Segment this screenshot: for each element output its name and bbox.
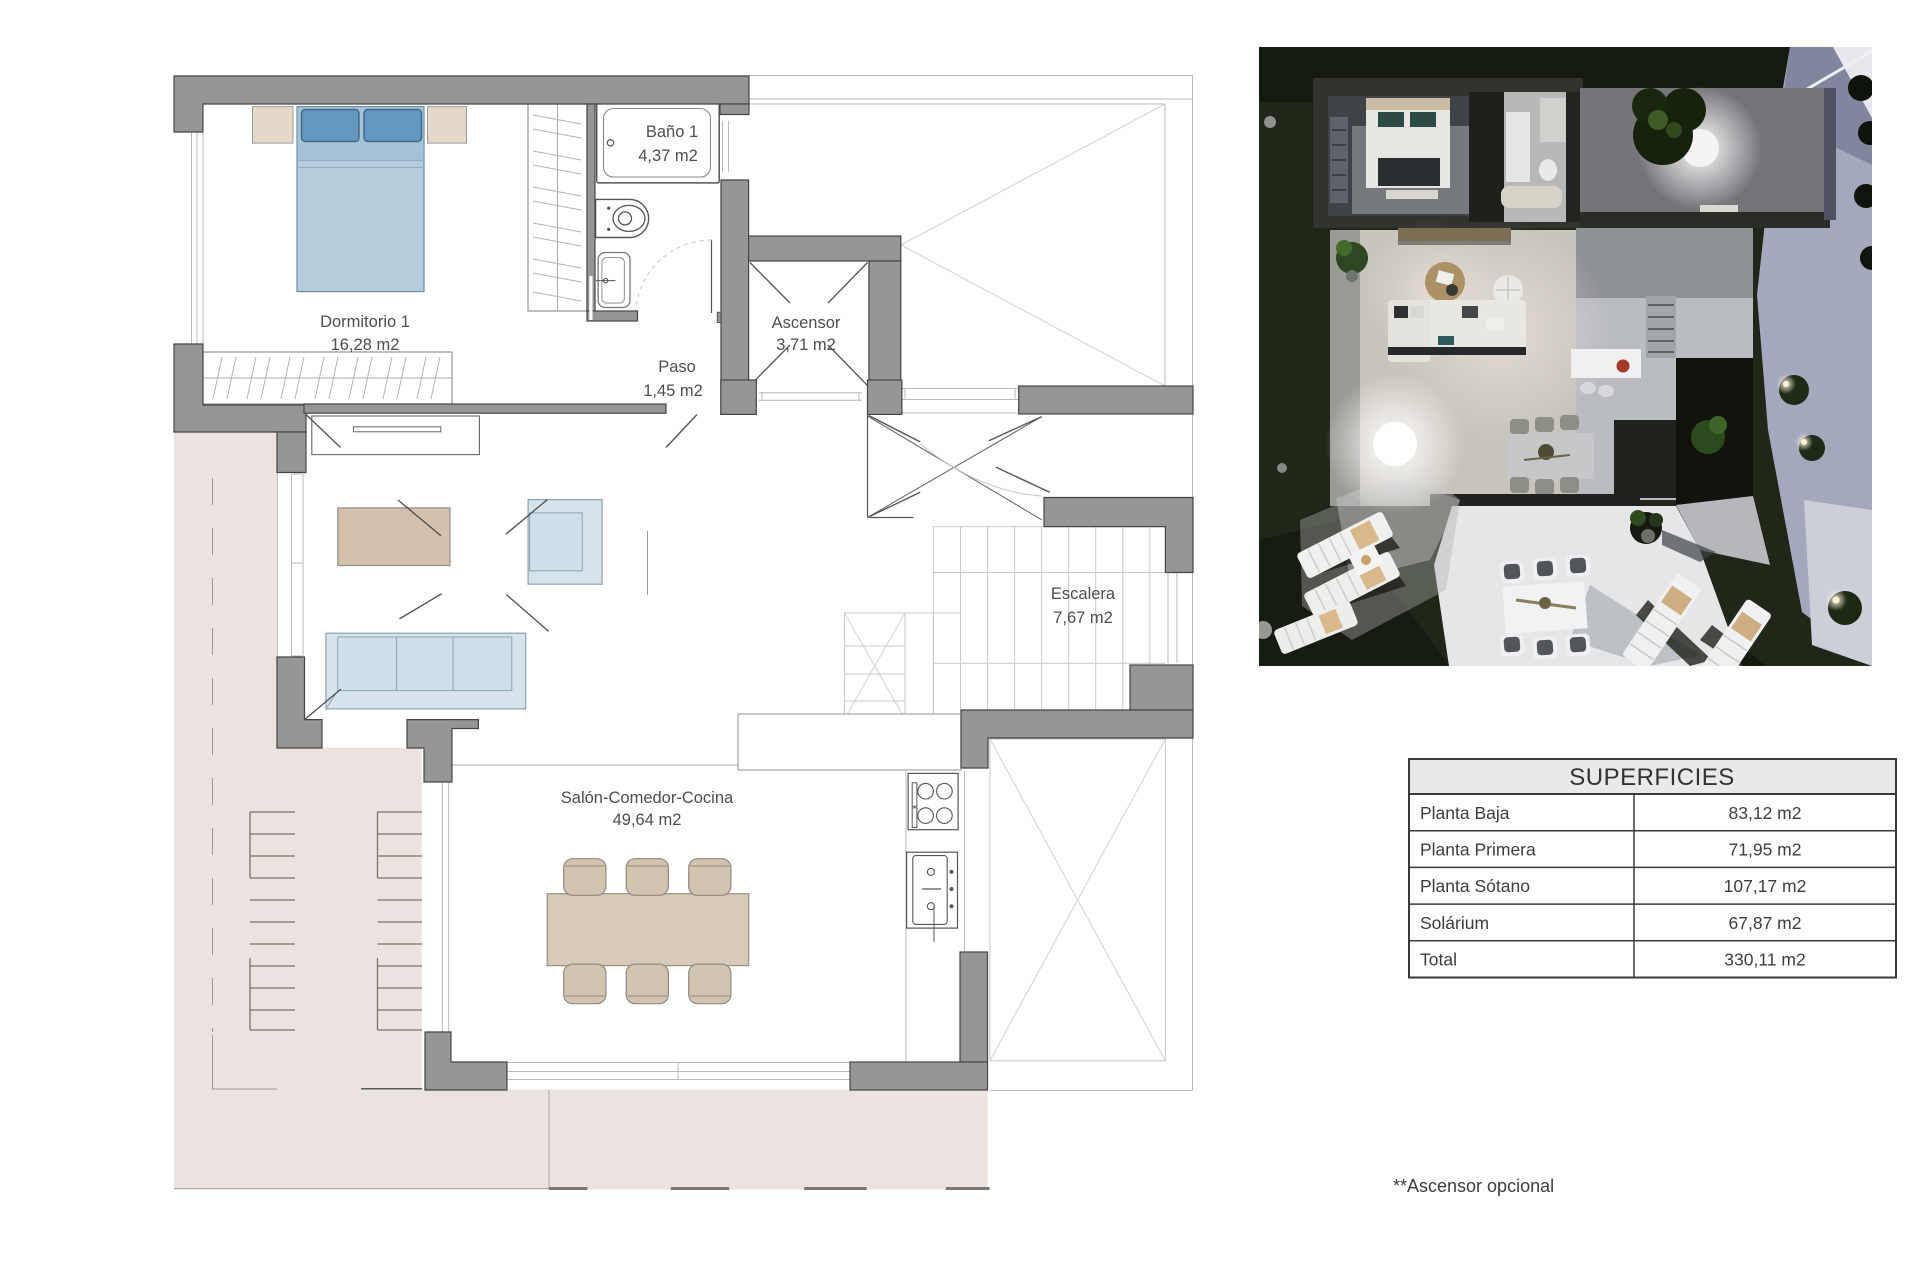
svg-text:Solárium: Solárium <box>1420 913 1489 933</box>
svg-text:Ascensor: Ascensor <box>772 314 841 332</box>
svg-text:Planta Sótano: Planta Sótano <box>1420 876 1530 896</box>
svg-text:71,95 m2: 71,95 m2 <box>1729 840 1802 860</box>
svg-text:3,71 m2: 3,71 m2 <box>776 336 836 354</box>
svg-text:Total: Total <box>1420 950 1457 970</box>
svg-text:Salón-Comedor-Cocina: Salón-Comedor-Cocina <box>561 789 734 807</box>
svg-text:Dormitorio 1: Dormitorio 1 <box>320 313 410 331</box>
svg-text:Baño 1: Baño 1 <box>646 123 698 141</box>
svg-text:4,37 m2: 4,37 m2 <box>638 147 698 165</box>
svg-text:49,64 m2: 49,64 m2 <box>613 811 682 829</box>
svg-text:330,11 m2: 330,11 m2 <box>1724 950 1805 970</box>
svg-text:107,17 m2: 107,17 m2 <box>1724 876 1807 896</box>
svg-text:1,45 m2: 1,45 m2 <box>643 382 703 400</box>
svg-text:Planta Primera: Planta Primera <box>1420 840 1536 860</box>
svg-text:SUPERFICIES: SUPERFICIES <box>1569 764 1735 791</box>
svg-text:Escalera: Escalera <box>1051 585 1116 603</box>
svg-text:Planta Baja: Planta Baja <box>1420 803 1510 823</box>
svg-text:7,67 m2: 7,67 m2 <box>1053 609 1113 627</box>
svg-text:**Ascensor opcional: **Ascensor opcional <box>1393 1176 1554 1196</box>
svg-text:83,12 m2: 83,12 m2 <box>1729 803 1802 823</box>
svg-text:16,28 m2: 16,28 m2 <box>331 336 400 354</box>
svg-text:Paso: Paso <box>658 358 696 376</box>
svg-text:67,87 m2: 67,87 m2 <box>1729 913 1802 933</box>
